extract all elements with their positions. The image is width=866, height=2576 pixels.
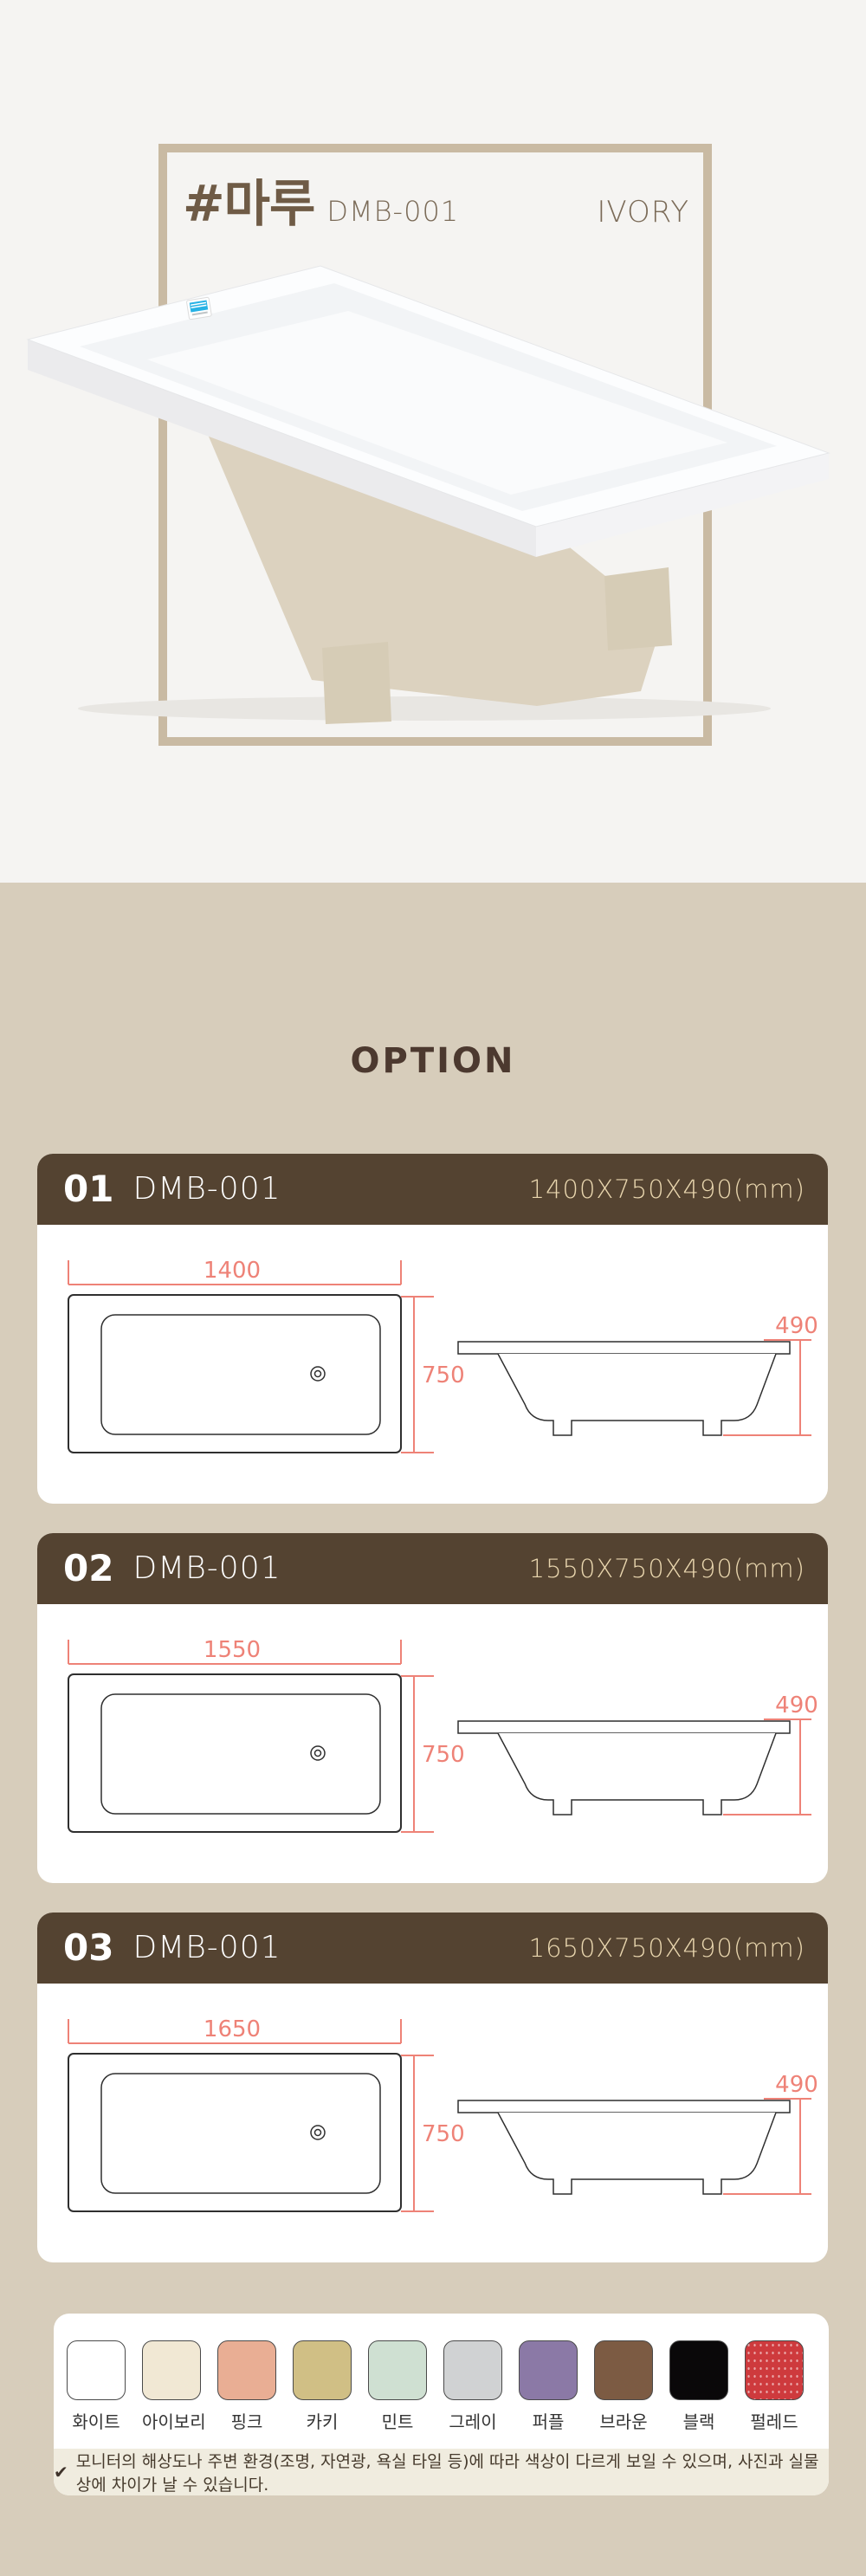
color-swatch xyxy=(669,2340,728,2400)
height-dimension-label: 490 xyxy=(775,1313,818,1339)
color-swatch xyxy=(745,2340,804,2400)
color-palette-card: 화이트 아이보리 핑크 카키 민트 그레 xyxy=(54,2314,829,2495)
option-card-header: 01 DMB-001 1400X750X490(mm) xyxy=(37,1154,828,1225)
swatch-row: 화이트 아이보리 핑크 카키 민트 그레 xyxy=(67,2340,804,2431)
sideview-rim xyxy=(458,1721,790,1733)
dimension-drawing: 1400 750 490 xyxy=(37,1225,828,1504)
brand-sticker xyxy=(186,297,211,320)
floor-shadow xyxy=(78,696,771,721)
option-card-header: 02 DMB-001 1550X750X490(mm) xyxy=(37,1533,828,1604)
product-model: DMB-001 xyxy=(326,195,459,228)
option-section-title: OPTION xyxy=(0,1044,866,1078)
swatch-cell: 그레이 xyxy=(443,2340,502,2431)
swatch-cell: 핑크 xyxy=(217,2340,276,2431)
swatch-label: 핑크 xyxy=(217,2412,276,2431)
color-swatch xyxy=(142,2340,201,2400)
swatch-cell: 퍼플 xyxy=(519,2340,578,2431)
option-card-body: 1650 750 490 xyxy=(37,1984,828,2262)
swatch-label: 아이보리 xyxy=(142,2412,201,2431)
swatch-label: 카키 xyxy=(293,2412,352,2431)
sideview-body xyxy=(498,1733,776,1815)
option-model: DMB-001 xyxy=(132,1174,281,1205)
depth-dimension-label: 750 xyxy=(422,2121,465,2147)
swatch-label: 그레이 xyxy=(443,2412,502,2431)
depth-dimension-label: 750 xyxy=(422,1362,465,1388)
width-dimension-label: 1550 xyxy=(204,1637,261,1663)
width-dimension-label: 1650 xyxy=(204,2016,261,2042)
swatch-label: 블랙 xyxy=(669,2412,728,2431)
sideview-body xyxy=(498,2113,776,2194)
dimension-drawing: 1550 750 490 xyxy=(37,1604,828,1883)
swatch-cell: 카키 xyxy=(293,2340,352,2431)
swatch-cell: 아이보리 xyxy=(142,2340,201,2431)
option-number: 01 xyxy=(63,1171,113,1207)
topview-inner-rect xyxy=(101,1315,380,1434)
depth-dimension-label: 750 xyxy=(422,1742,465,1768)
finish-label: IVORY xyxy=(597,197,689,227)
color-swatch xyxy=(519,2340,578,2400)
color-swatch xyxy=(293,2340,352,2400)
sideview-rim xyxy=(458,1342,790,1354)
swatch-label: 퍼플 xyxy=(519,2412,578,2431)
color-swatch xyxy=(368,2340,427,2400)
option-card-body: 1550 750 490 xyxy=(37,1604,828,1883)
option-card-body: 1400 750 490 xyxy=(37,1225,828,1504)
color-swatch xyxy=(67,2340,126,2400)
color-note-text: 모니터의 해상도나 주변 환경(조명, 자연광, 욕실 타일 등)에 따라 색상… xyxy=(76,2449,829,2495)
topview-inner-rect xyxy=(101,1694,380,1814)
swatch-label: 브라운 xyxy=(594,2412,653,2431)
swatch-label: 펄레드 xyxy=(745,2412,804,2431)
product-hero-section: #마루 DMB-001 IVORY xyxy=(0,0,866,883)
option-size: 1650X750X490(mm) xyxy=(529,1936,805,1961)
width-dimension-label: 1400 xyxy=(204,1258,261,1284)
check-icon: ✔ xyxy=(54,2462,68,2482)
swatch-cell: 민트 xyxy=(368,2340,427,2431)
option-card: 03 DMB-001 1650X750X490(mm) 1650 xyxy=(37,1913,828,2262)
tub-foot-right xyxy=(604,567,672,650)
sideview-body xyxy=(498,1354,776,1435)
height-dimension-label: 490 xyxy=(775,1693,818,1718)
tub-foot-left xyxy=(322,642,391,724)
product-name: #마루 xyxy=(183,178,314,229)
option-model: DMB-001 xyxy=(132,1932,281,1964)
color-note-bar: ✔ 모니터의 해상도나 주변 환경(조명, 자연광, 욕실 타일 등)에 따라 … xyxy=(54,2449,829,2495)
color-swatch xyxy=(217,2340,276,2400)
option-size: 1400X750X490(mm) xyxy=(529,1177,805,1202)
sideview-rim xyxy=(458,2100,790,2113)
swatch-cell: 블랙 xyxy=(669,2340,728,2431)
bathtub-photo xyxy=(17,254,831,726)
swatch-cell: 펄레드 xyxy=(745,2340,804,2431)
option-size: 1550X750X490(mm) xyxy=(529,1557,805,1582)
product-title-row: #마루 DMB-001 xyxy=(183,178,459,229)
option-number: 02 xyxy=(63,1550,113,1587)
color-swatch xyxy=(594,2340,653,2400)
swatch-label: 민트 xyxy=(368,2412,427,2431)
swatch-cell: 화이트 xyxy=(67,2340,126,2431)
topview-inner-rect xyxy=(101,2074,380,2193)
swatch-cell: 브라운 xyxy=(594,2340,653,2431)
option-card: 02 DMB-001 1550X750X490(mm) 1550 xyxy=(37,1533,828,1883)
dimension-drawing: 1650 750 490 xyxy=(37,1984,828,2262)
option-card: 01 DMB-001 1400X750X490(mm) 1400 xyxy=(37,1154,828,1504)
option-model: DMB-001 xyxy=(132,1553,281,1584)
color-swatch xyxy=(443,2340,502,2400)
height-dimension-label: 490 xyxy=(775,2072,818,2098)
swatch-label: 화이트 xyxy=(67,2412,126,2431)
option-card-header: 03 DMB-001 1650X750X490(mm) xyxy=(37,1913,828,1984)
option-number: 03 xyxy=(63,1930,113,1966)
